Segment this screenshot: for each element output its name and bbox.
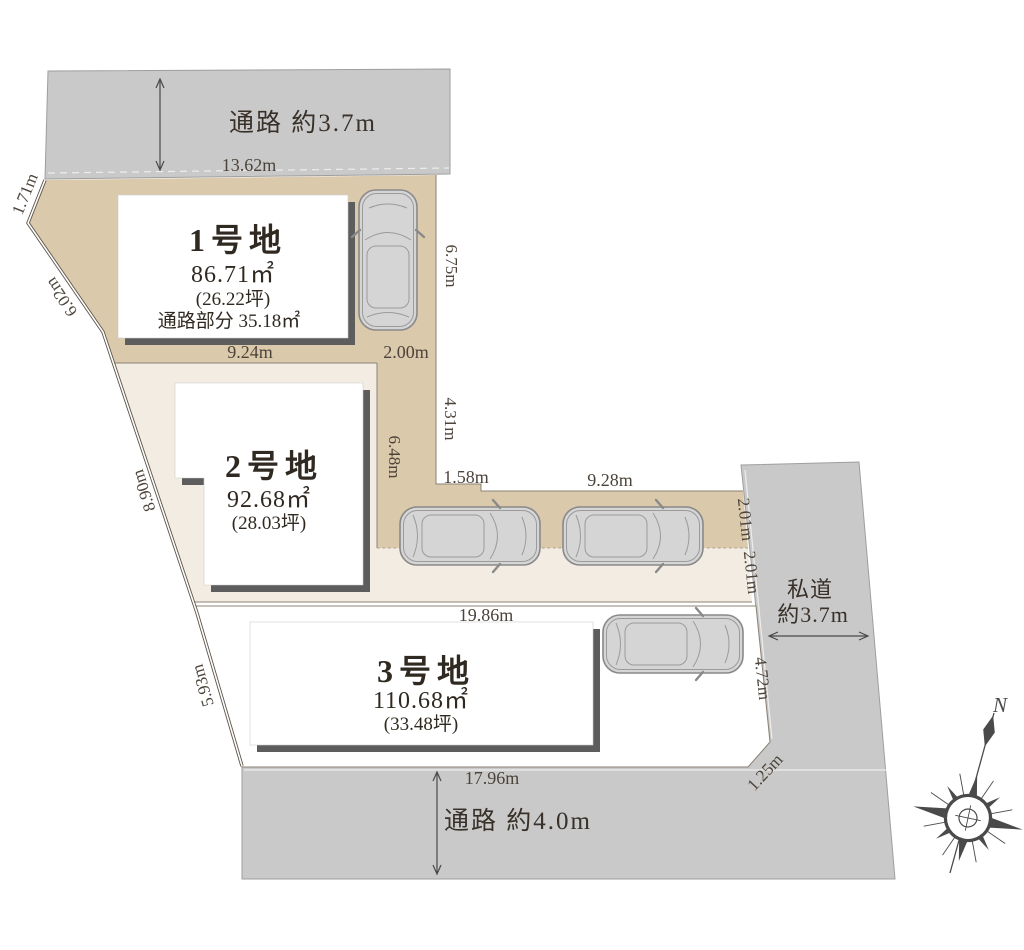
- lot1-name: 1号地: [189, 222, 287, 258]
- dim-1-58: 1.58m: [443, 467, 489, 487]
- road-top-label: 通路 約3.7m: [229, 109, 377, 137]
- dim-2-00: 2.00m: [383, 342, 429, 362]
- dim-6-48: 6.48m: [385, 436, 404, 479]
- dim-9-28: 9.28m: [587, 470, 633, 490]
- dim-9-24: 9.24m: [227, 342, 273, 362]
- road-bottom-label: 通路 約4.0m: [444, 807, 592, 835]
- car-lot1: [352, 190, 424, 330]
- compass-north-label: N: [992, 693, 1008, 717]
- lot1-note-text: 通路部分 35.18㎡: [158, 309, 301, 332]
- dim-4-31: 4.31m: [441, 398, 460, 441]
- plot-plan-svg: N 通路 約3.7m 通路 約4.0m 私道 約3.7m 13.62m 9.24…: [0, 0, 1024, 950]
- compass-rose: [904, 763, 1024, 872]
- lot1-area-text: 86.71㎡: [191, 261, 275, 288]
- dim-13-62: 13.62m: [222, 155, 277, 175]
- lot-layout-diagram: N 通路 約3.7m 通路 約4.0m 私道 約3.7m 13.62m 9.24…: [0, 0, 1024, 950]
- dim-17-96: 17.96m: [465, 768, 520, 788]
- road-right-label-1: 私道: [787, 577, 833, 602]
- lot3-tsubo-text: (33.48坪): [384, 713, 458, 735]
- compass-needle-diamond: [979, 714, 999, 748]
- lot2-area-text: 92.68㎡: [227, 486, 311, 513]
- car-driveway-2: [563, 500, 703, 572]
- car-driveway-1: [400, 500, 540, 572]
- lot2-tsubo-text: (28.03坪): [232, 512, 306, 534]
- lot1-tsubo-text: (26.22坪): [196, 288, 270, 310]
- compass: N: [904, 693, 1024, 873]
- car-lot3: [603, 608, 743, 680]
- dim-19-86: 19.86m: [459, 605, 514, 625]
- road-right-label-2: 約3.7m: [777, 602, 849, 627]
- lot2-name: 2号地: [225, 448, 323, 484]
- lot3-name: 3号地: [377, 653, 475, 689]
- lot3-area-text: 110.68㎡: [373, 687, 469, 714]
- dim-6-75: 6.75m: [442, 245, 461, 288]
